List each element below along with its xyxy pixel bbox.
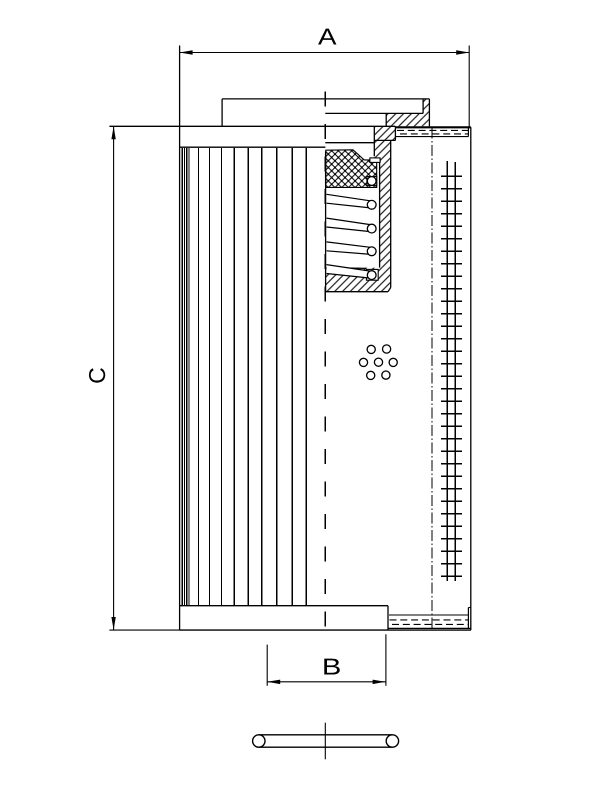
svg-text:B: B bbox=[322, 654, 342, 680]
svg-text:C: C bbox=[84, 367, 110, 384]
svg-text:A: A bbox=[318, 24, 337, 50]
